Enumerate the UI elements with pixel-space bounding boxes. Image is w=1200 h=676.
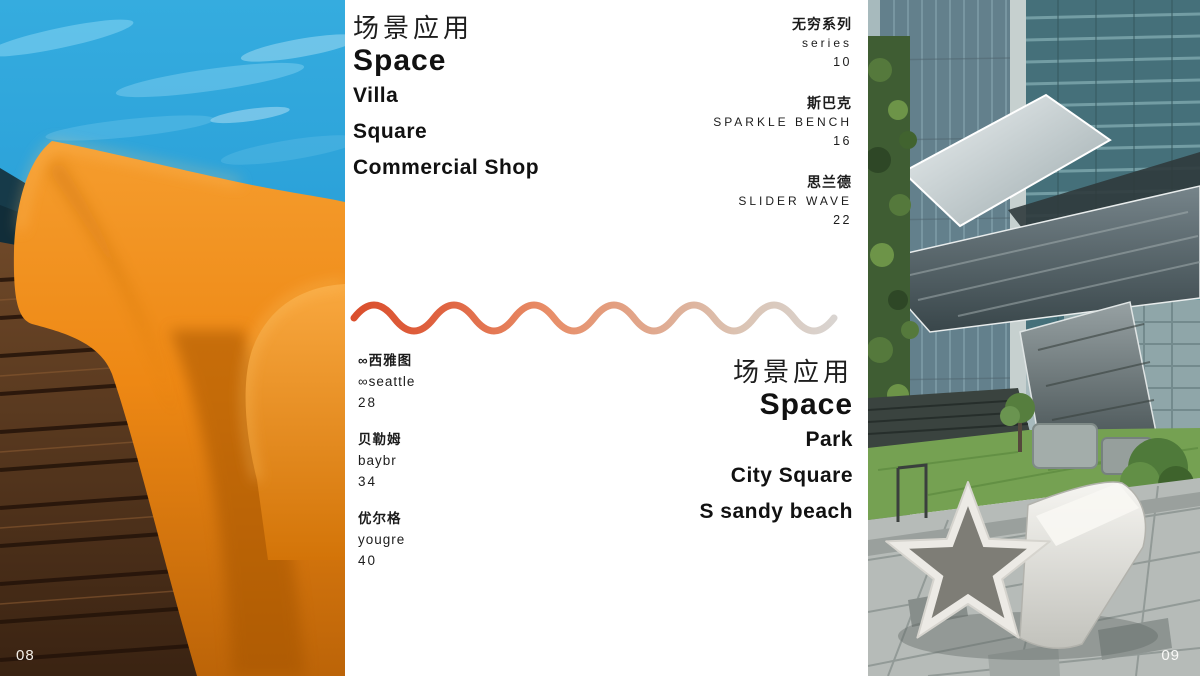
toc-item-commercial-shop: Commercial Shop bbox=[353, 150, 539, 186]
toc-entry-sparkle-bench: 斯巴克 SPARKLE BENCH 16 bbox=[713, 93, 852, 151]
section-title-en: Space bbox=[699, 388, 853, 422]
entry-page: 10 bbox=[713, 53, 852, 72]
toc-item-park: Park bbox=[699, 422, 853, 458]
entry-name-cn: 斯巴克 bbox=[713, 93, 852, 113]
entry-name-cn: ∞西雅图 bbox=[358, 350, 415, 371]
pool-chaise-photo: 08 bbox=[0, 0, 345, 676]
toc-series-list-top: 无穷系列 series 10 斯巴克 SPARKLE BENCH 16 思兰德 … bbox=[713, 14, 852, 251]
wave-divider-line bbox=[350, 298, 840, 338]
toc-item-sandy-beach: S sandy beach bbox=[699, 494, 853, 530]
section-title-cn: 场景应用 bbox=[699, 356, 853, 388]
toc-entry-baybr: 贝勒姆 baybr 34 bbox=[358, 429, 415, 492]
toc-item-villa: Villa bbox=[353, 78, 539, 114]
toc-section-space-bottom: 场景应用 Space Park City Square S sandy beac… bbox=[699, 356, 853, 530]
toc-series-list-bottom: ∞西雅图 ∞seattle 28 贝勒姆 baybr 34 优尔格 yougre… bbox=[358, 350, 415, 587]
entry-page: 34 bbox=[358, 471, 415, 492]
catalog-spread: 08 场景应用 Space Villa Square Commercial Sh… bbox=[0, 0, 1200, 676]
entry-name-cn: 贝勒姆 bbox=[358, 429, 415, 450]
entry-page: 28 bbox=[358, 392, 415, 413]
section-title-cn: 场景应用 bbox=[353, 12, 539, 44]
entry-page: 16 bbox=[713, 132, 852, 151]
entry-name-en: baybr bbox=[358, 450, 415, 471]
wave-divider bbox=[350, 298, 840, 338]
entry-name-cn: 无穷系列 bbox=[713, 14, 852, 34]
section-title-en: Space bbox=[353, 44, 539, 78]
pool-photo-art bbox=[0, 0, 345, 676]
entry-page: 22 bbox=[713, 211, 852, 230]
toc-entry-slider-wave: 思兰德 SLIDER WAVE 22 bbox=[713, 172, 852, 230]
entry-name-en: ∞seattle bbox=[358, 371, 415, 392]
contents-panel: 场景应用 Space Villa Square Commercial Shop … bbox=[345, 0, 868, 676]
entry-page: 40 bbox=[358, 550, 415, 571]
entry-name-en: series bbox=[713, 34, 852, 53]
plaza-photo-art bbox=[868, 0, 1200, 676]
entry-name-en: SLIDER WAVE bbox=[713, 192, 852, 211]
toc-item-city-square: City Square bbox=[699, 458, 853, 494]
toc-entry-series: 无穷系列 series 10 bbox=[713, 14, 852, 72]
toc-item-square: Square bbox=[353, 114, 539, 150]
entry-name-en: SPARKLE BENCH bbox=[713, 113, 852, 132]
plaza-bench-photo: 09 bbox=[868, 0, 1200, 676]
entry-name-en: yougre bbox=[358, 529, 415, 550]
toc-section-space-top: 场景应用 Space Villa Square Commercial Shop bbox=[353, 12, 539, 186]
entry-name-cn: 思兰德 bbox=[713, 172, 852, 192]
page-number-right: 09 bbox=[1161, 647, 1180, 664]
page-number-left: 08 bbox=[16, 647, 35, 664]
entry-name-cn: 优尔格 bbox=[358, 508, 415, 529]
toc-entry-yougre: 优尔格 yougre 40 bbox=[358, 508, 415, 571]
toc-entry-seattle: ∞西雅图 ∞seattle 28 bbox=[358, 350, 415, 413]
